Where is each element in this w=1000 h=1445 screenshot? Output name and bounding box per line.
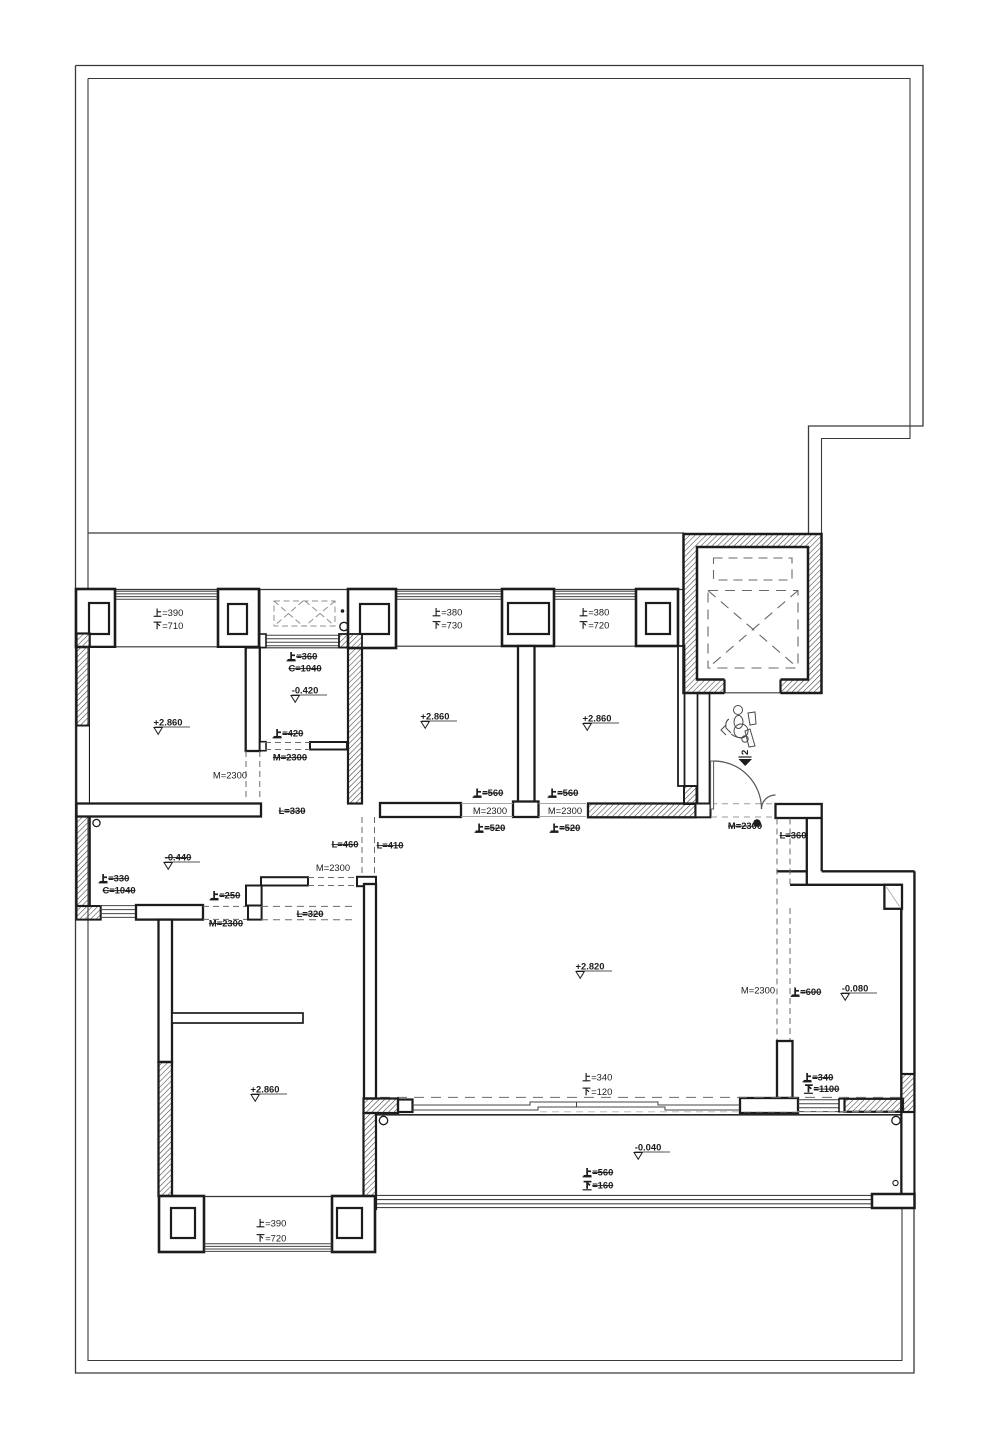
svg-text:-0.420: -0.420 bbox=[292, 685, 319, 696]
svg-text:+2.860: +2.860 bbox=[583, 713, 612, 724]
svg-text:=720: =720 bbox=[588, 620, 609, 631]
svg-text:C=1040: C=1040 bbox=[288, 663, 321, 674]
svg-text:=560: =560 bbox=[557, 787, 578, 798]
svg-text:L=360: L=360 bbox=[780, 830, 807, 841]
svg-text:=420: =420 bbox=[282, 728, 303, 739]
svg-text:=560: =560 bbox=[592, 1167, 613, 1178]
svg-text:=390: =390 bbox=[265, 1218, 286, 1229]
svg-text:=340: =340 bbox=[812, 1072, 833, 1083]
svg-text:=560: =560 bbox=[482, 787, 503, 798]
svg-text:=250: =250 bbox=[219, 890, 240, 901]
svg-text:-0.080: -0.080 bbox=[842, 983, 869, 994]
svg-text:+2.820: +2.820 bbox=[576, 961, 605, 972]
svg-text:=360: =360 bbox=[296, 651, 317, 662]
svg-text:+2.860: +2.860 bbox=[421, 711, 450, 722]
svg-text:=710: =710 bbox=[162, 620, 183, 631]
svg-text:M=2300: M=2300 bbox=[209, 918, 243, 929]
svg-text:=520: =520 bbox=[559, 822, 580, 833]
svg-text:L=460: L=460 bbox=[332, 839, 359, 850]
svg-text:C=1040: C=1040 bbox=[102, 885, 135, 896]
svg-text:M=2300: M=2300 bbox=[273, 752, 307, 763]
svg-text:M=2300: M=2300 bbox=[213, 770, 247, 781]
svg-text:=520: =520 bbox=[484, 822, 505, 833]
svg-text:=600: =600 bbox=[800, 986, 821, 997]
svg-text:=120: =120 bbox=[591, 1086, 612, 1097]
svg-text:+2.860: +2.860 bbox=[154, 717, 183, 728]
svg-text:=380: =380 bbox=[588, 607, 609, 618]
svg-text:2: 2 bbox=[740, 750, 751, 755]
svg-text:=1100: =1100 bbox=[814, 1083, 840, 1094]
svg-text:+2.860: +2.860 bbox=[251, 1084, 280, 1095]
svg-text:=330: =330 bbox=[108, 873, 129, 884]
svg-text:=340: =340 bbox=[591, 1072, 612, 1083]
svg-text:=160: =160 bbox=[592, 1180, 613, 1191]
svg-text:L=330: L=330 bbox=[279, 805, 306, 816]
svg-text:=390: =390 bbox=[162, 607, 183, 618]
svg-text:-0.040: -0.040 bbox=[635, 1142, 662, 1153]
svg-text:=720: =720 bbox=[265, 1233, 286, 1244]
svg-text:L=410: L=410 bbox=[377, 840, 404, 851]
svg-text:M=2300: M=2300 bbox=[548, 805, 582, 816]
svg-text:L=320: L=320 bbox=[297, 908, 324, 919]
svg-text:M=2300: M=2300 bbox=[473, 805, 507, 816]
svg-text:M=2300: M=2300 bbox=[316, 862, 350, 873]
svg-text:=730: =730 bbox=[441, 620, 462, 631]
svg-text:M=2300: M=2300 bbox=[741, 985, 775, 996]
svg-text:=380: =380 bbox=[441, 607, 462, 618]
svg-text:-0.440: -0.440 bbox=[165, 852, 192, 863]
